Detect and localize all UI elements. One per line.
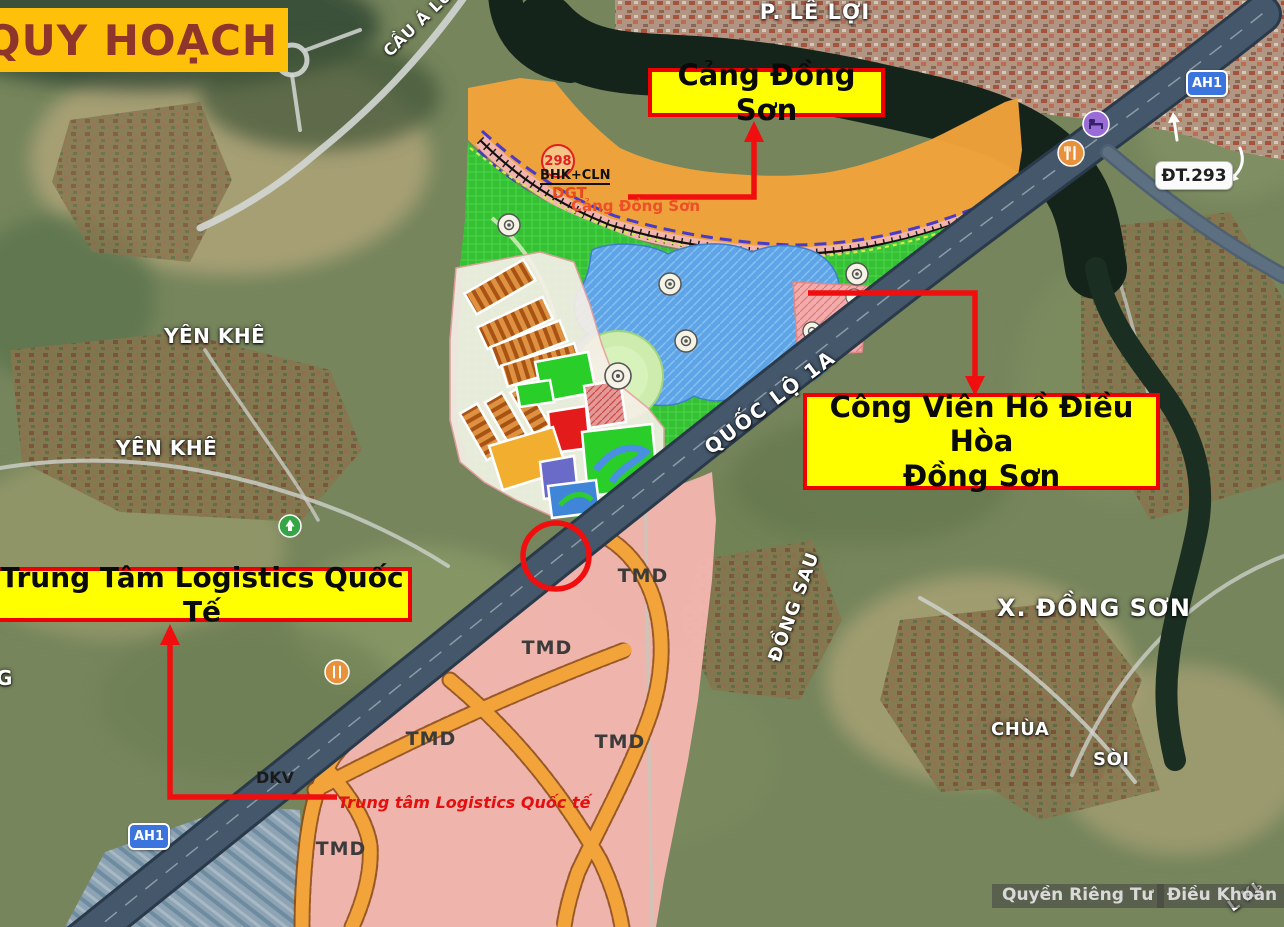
terms-link[interactable]: Điều Khoản xyxy=(1157,884,1284,908)
restaurant-icon-top xyxy=(1058,140,1084,166)
callout-logistics: Trung Tâm Logistics Quốc Tế xyxy=(0,567,412,622)
plan-zone-tmd-4: TMD xyxy=(595,731,646,753)
ward-label: P. LÊ LỢI xyxy=(760,0,870,24)
callout-park-line2: Đồng Sơn xyxy=(903,459,1060,493)
plan-zone-bhk-cln: BHK+CLN xyxy=(540,168,610,185)
commune-label: X. ĐỒNG SƠN xyxy=(997,594,1191,622)
callout-park-line1: Công Viên Hồ Điều Hòa xyxy=(807,390,1156,458)
edge-label-fragment: G xyxy=(0,666,13,690)
map[interactable]: P. LÊ LỢI CẦU Á LỮ YÊN KHÊ YÊN KHÊ X. ĐỒ… xyxy=(0,0,1284,927)
hotel-icon xyxy=(1083,111,1109,137)
badge-ah1-top: AH1 xyxy=(1186,70,1228,97)
village-label-yen-khe-upper: YÊN KHÊ xyxy=(164,324,265,348)
park-poi-icon xyxy=(279,515,301,537)
plan-port-name: Cảng Đồng Sơn xyxy=(571,197,700,215)
plan-logistics-name: Trung tâm Logistics Quốc tế xyxy=(338,793,590,812)
village-label-yen-khe-lower: YÊN KHÊ xyxy=(116,436,217,460)
plan-title: QUY HOẠCH xyxy=(0,16,278,65)
callout-port-label: Cảng Đồng Sơn xyxy=(652,58,881,126)
plan-zone-tmd-5: TMD xyxy=(316,838,367,860)
plan-zone-tmd-2: TMD xyxy=(522,637,573,659)
hamlet-label-chua: CHÙA xyxy=(991,719,1049,740)
badge-dt293: ĐT.293 xyxy=(1155,161,1233,190)
restaurant-icon-mid xyxy=(325,660,349,684)
plan-zone-dkv: DKV xyxy=(256,768,294,787)
plan-zone-tmd-1: TMD xyxy=(618,565,669,587)
callout-logistics-label: Trung Tâm Logistics Quốc Tế xyxy=(0,561,408,627)
plan-zone-tmd-3: TMD xyxy=(406,728,457,750)
plan-title-banner: QUY HOẠCH xyxy=(0,8,288,72)
callout-park: Công Viên Hồ Điều Hòa Đồng Sơn xyxy=(803,393,1160,490)
hamlet-label-soi: SÒI xyxy=(1093,749,1129,770)
callout-port: Cảng Đồng Sơn xyxy=(648,68,885,117)
plan-parcel-number: 298 xyxy=(544,154,571,169)
badge-ah1-bottom: AH1 xyxy=(128,823,170,850)
privacy-link[interactable]: Quyền Riêng Tư xyxy=(992,884,1164,908)
